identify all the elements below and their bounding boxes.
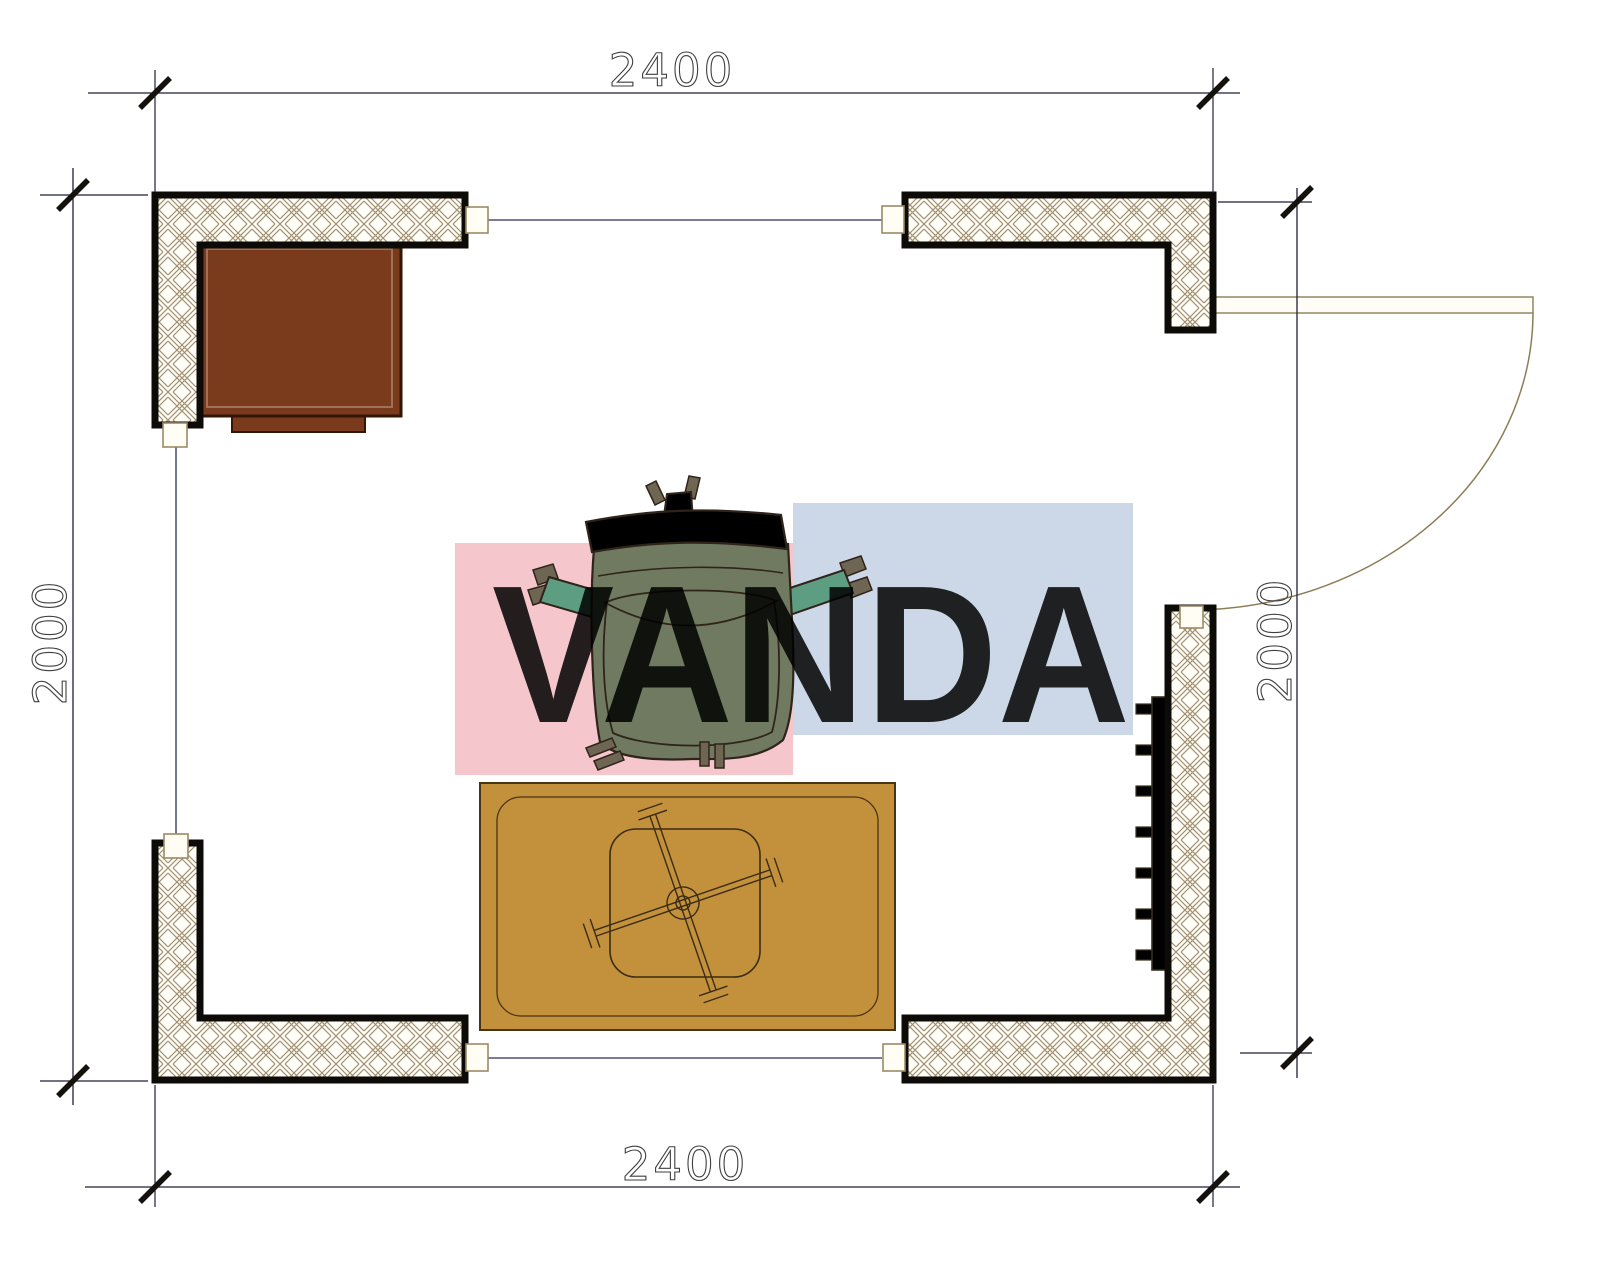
dimension-left: 2000 [24, 168, 148, 1105]
cabinet-body [198, 240, 401, 416]
wall-cap [466, 1044, 488, 1071]
wall-cap [164, 834, 188, 858]
dimension-bottom: 2400 [85, 1085, 1240, 1207]
radiator-fin [1136, 704, 1153, 714]
dimension-top: 2400 [88, 44, 1240, 193]
watermark-text: VANDA [492, 545, 1130, 764]
radiator-fin [1136, 827, 1153, 837]
wall-cap [883, 1044, 905, 1071]
dim-label-top: 2400 [609, 44, 736, 97]
dim-label-bottom: 2400 [622, 1138, 749, 1191]
wall-cap [882, 206, 904, 233]
wall-top-right [905, 195, 1213, 330]
radiator-fin [1136, 868, 1153, 878]
radiator-fin [1136, 950, 1153, 960]
wall-bottom-left [155, 843, 465, 1080]
wall-cap [466, 207, 488, 233]
chair-top-prong-left [646, 481, 665, 505]
dim-label-right: 2000 [1249, 577, 1302, 704]
floor-plan-page: VANDA [0, 0, 1600, 1280]
radiator-fin [1136, 786, 1153, 796]
door [1181, 284, 1533, 610]
dimension-right: 2000 [1218, 187, 1312, 1078]
cabinet [198, 240, 401, 432]
wall-cap [163, 423, 187, 447]
door-swing-arc [1190, 313, 1533, 610]
radiator-fin [1136, 909, 1153, 919]
radiator-fin [1136, 745, 1153, 755]
door-leaf [1181, 297, 1533, 313]
wall-cap [1180, 606, 1203, 628]
dim-label-left: 2000 [24, 579, 77, 706]
floorplan-canvas: VANDA [0, 0, 1600, 1280]
